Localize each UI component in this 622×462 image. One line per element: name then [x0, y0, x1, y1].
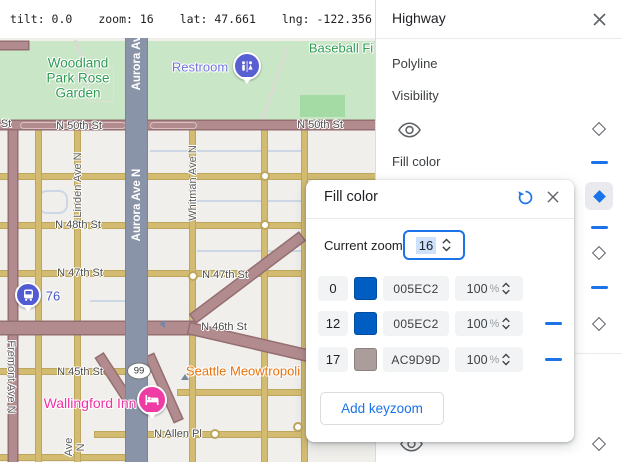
fill-color-popup: Fill color Current zoom 16 0 005EC2 100%…: [306, 180, 574, 442]
color-swatch[interactable]: [354, 312, 377, 335]
map-label: Whitman Ave N: [187, 145, 199, 221]
wallingford-inn-pin[interactable]: [137, 385, 167, 415]
keyzoom-diamond-icon[interactable]: [592, 246, 606, 260]
map-label: N 48th St: [55, 219, 101, 231]
eye-icon: [398, 122, 421, 138]
intersection-node: [293, 422, 303, 432]
current-zoom-value[interactable]: 16: [416, 237, 436, 254]
alley-loop: [38, 190, 68, 214]
keyzoom-row: 0 005EC2 100%: [318, 276, 562, 301]
visibility-eye-button[interactable]: [398, 122, 421, 143]
section-polyline: Polyline: [392, 56, 438, 71]
remove-keyzoom-button[interactable]: [545, 358, 562, 361]
lng-readout: lng: -122.356: [282, 12, 372, 26]
map-label: Baseball Fi: [309, 41, 373, 56]
stepper-chevrons-icon[interactable]: [501, 353, 511, 366]
map-label: Aurora Av: [131, 38, 143, 90]
lat-readout: lat: 47.661: [180, 12, 256, 26]
current-zoom-label: Current zoom: [324, 238, 403, 253]
hex-value[interactable]: 005EC2: [383, 276, 449, 301]
tilt-readout: tilt: 0.0: [10, 12, 72, 26]
stepper-chevrons-icon[interactable]: [501, 317, 511, 330]
keyzoom-diamond-icon[interactable]: [592, 122, 606, 136]
close-icon: [593, 13, 606, 26]
divider: [376, 38, 622, 39]
restroom-pin[interactable]: [233, 52, 261, 80]
bus-stop-pin[interactable]: [15, 282, 41, 308]
popup-title: Fill color: [324, 189, 378, 205]
close-icon: [547, 191, 559, 203]
keyzoom-row: 12 005EC2 100%: [318, 311, 562, 336]
alley-line: [150, 150, 303, 152]
keyzoom-row: 17 AC9D9D 100%: [318, 347, 562, 372]
bus-icon: [23, 289, 34, 301]
map-label: Seattle Meowtropoli: [186, 364, 300, 379]
map-label: Ave N: [63, 438, 87, 457]
opacity-stepper[interactable]: 100%: [455, 276, 523, 301]
map-label: 76: [46, 289, 60, 304]
intersection-node: [188, 271, 198, 281]
keyzoom-segment: [591, 161, 608, 164]
lodging-icon: [145, 395, 159, 405]
map-label: Linden Ave N: [72, 152, 84, 217]
opacity-stepper[interactable]: 100%: [455, 311, 523, 336]
oneway-arrow-icon: [155, 320, 165, 328]
color-swatch[interactable]: [354, 348, 377, 371]
alley-line: [90, 300, 126, 302]
intersection-node: [210, 429, 220, 439]
intersection-node: [260, 171, 270, 181]
remove-keyzoom-button[interactable]: [545, 322, 562, 325]
keyzoom-level[interactable]: 17: [318, 347, 348, 372]
hex-value[interactable]: AC9D9D: [383, 347, 449, 372]
road-fragment-topleft: [0, 42, 28, 49]
row-fill-color[interactable]: Fill color: [392, 154, 440, 169]
alley-line: [197, 200, 302, 202]
map-label: Restroom: [172, 60, 228, 75]
keyzoom-segment: [591, 286, 608, 289]
map-label: N 47th St: [57, 267, 103, 279]
map-label: N 50th St: [56, 120, 102, 132]
road-n-46th-st: [0, 322, 195, 334]
map-label: N 47th St: [202, 269, 248, 281]
stepper-chevrons-icon[interactable]: [501, 282, 511, 295]
map-label: N 45th St: [57, 366, 103, 378]
keyzoom-diamond-icon[interactable]: [592, 437, 606, 451]
map-label: Wallingford Inn: [44, 395, 137, 411]
add-keyzoom-button[interactable]: Add keyzoom: [320, 392, 444, 425]
restroom-icon: [240, 61, 254, 72]
map-label: N 50th St: [297, 119, 343, 131]
map-label: Aurora Ave N: [131, 169, 143, 242]
panel-close-button[interactable]: [588, 8, 610, 30]
current-zoom-stepper[interactable]: 16: [403, 230, 465, 260]
divider: [306, 218, 574, 219]
reset-icon: [517, 189, 534, 206]
map-label: St: [1, 118, 11, 130]
keyzoom-diamond-icon[interactable]: [592, 317, 606, 331]
divider: [575, 353, 622, 354]
map-label: N 46th St: [201, 321, 247, 333]
map-label: Woodland Park Rose Garden: [46, 56, 109, 101]
panel-title: Highway: [392, 10, 446, 26]
map-label: N Allen Pl: [154, 428, 202, 440]
zoom-readout: zoom: 16: [98, 12, 153, 26]
reset-button[interactable]: [514, 186, 536, 208]
keyzoom-segment: [591, 226, 608, 229]
ballfield-area: [300, 95, 345, 117]
stepper-chevrons-icon[interactable]: [441, 238, 452, 252]
intersection-node: [260, 220, 270, 230]
keyzoom-level[interactable]: 12: [318, 311, 348, 336]
route-99-shield: 99: [127, 363, 151, 380]
keyzoom-diamond-selected-icon[interactable]: [585, 182, 613, 210]
map-label: Fremont Ave N: [5, 340, 17, 413]
hex-value[interactable]: 005EC2: [383, 311, 449, 336]
popup-close-button[interactable]: [542, 186, 564, 208]
road-n-45th-st-east: [178, 390, 308, 395]
keyzoom-level[interactable]: 0: [318, 276, 348, 301]
row-visibility[interactable]: Visibility: [392, 88, 439, 103]
opacity-stepper[interactable]: 100%: [455, 347, 523, 372]
map-status-bar: tilt: 0.0 zoom: 16 lat: 47.661 lng: -122…: [0, 0, 375, 38]
lane-divider: [150, 122, 197, 129]
color-swatch[interactable]: [354, 277, 377, 300]
